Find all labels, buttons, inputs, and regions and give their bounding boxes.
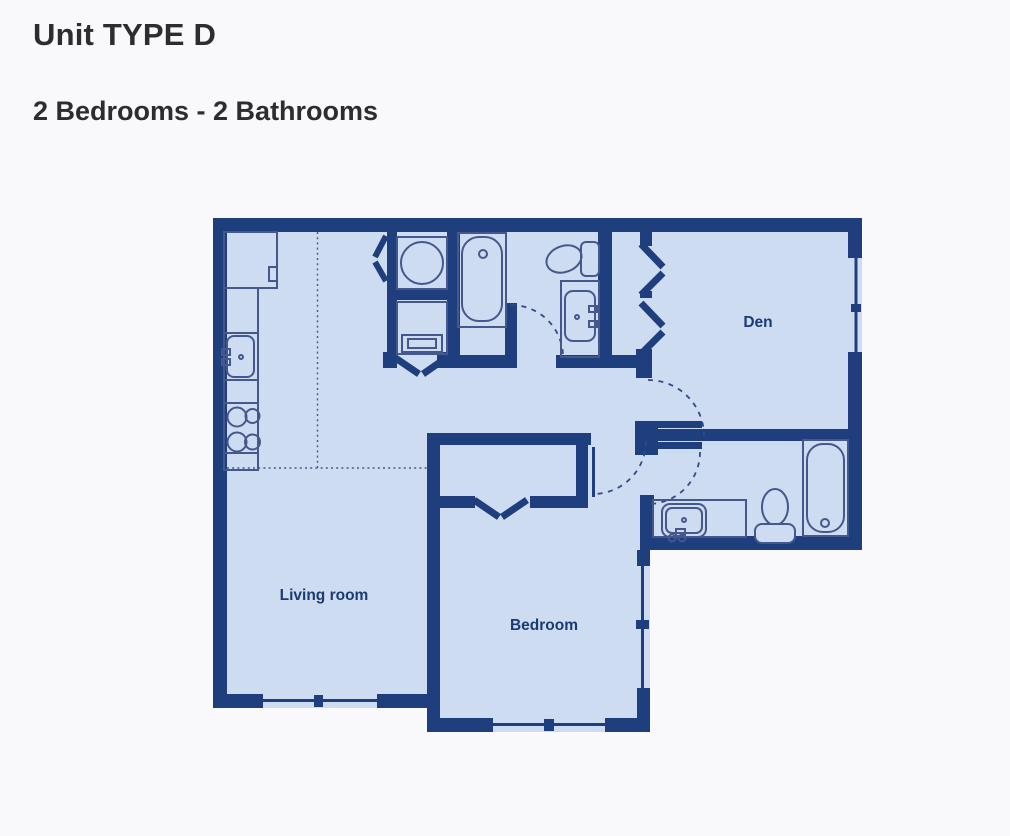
room-label-living-room: Living room bbox=[280, 587, 369, 604]
room-label-den: Den bbox=[743, 314, 772, 331]
floor-area bbox=[213, 218, 862, 732]
floor-plan: Den Living room Bedroom bbox=[0, 0, 1010, 836]
room-label-bedroom: Bedroom bbox=[510, 617, 578, 634]
